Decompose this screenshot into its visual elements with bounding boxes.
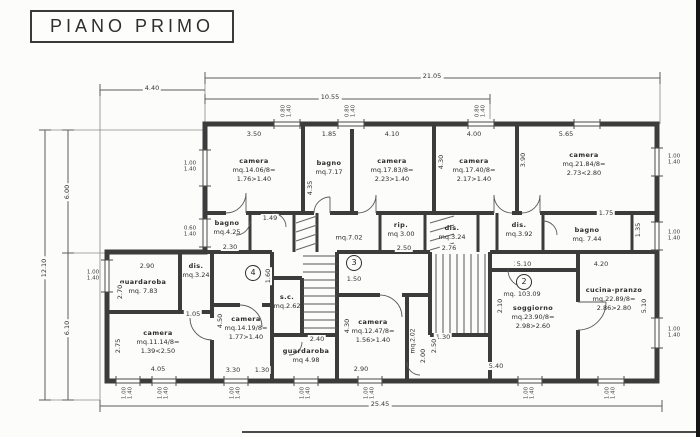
dim-room-19-w2: 5.40: [487, 362, 505, 370]
room-label-dis-c: dis. mq.3.24: [439, 224, 466, 242]
dim-stair-width: 2.50: [430, 337, 438, 355]
window-label-bottom-4: 1.001.40: [300, 387, 313, 399]
dim-left-upper: 6.00: [63, 183, 71, 201]
room-label-dis-w: dis. mq.3.24: [183, 262, 210, 280]
room-label-camera-n1: camera mq.17.83/8= 2.23>1.40: [371, 157, 414, 183]
dim-room-13-w: 4.05: [149, 365, 167, 373]
dim-room-3-h: 4.30: [437, 153, 445, 171]
window-label-left-mid: 0.601.40: [184, 226, 196, 239]
room-label-rip-s: mq.2.02: [410, 329, 417, 354]
dim-left-lower: 6.10: [63, 319, 71, 337]
dim-room-19-w: 5.10: [515, 260, 533, 268]
dim-room-14-h: 4.50: [216, 312, 224, 330]
dim-room-16-w: 2.40: [308, 335, 326, 343]
dim-room-5-w: 2.30: [221, 243, 239, 251]
floor-plan-page: PIANO PRIMO 21.05 10.55 4.40 12.10 6.00 …: [0, 0, 700, 437]
dim-room-4-w: 5.65: [557, 130, 575, 138]
dim-top-total: 21.05: [421, 72, 444, 80]
window-label-right-2: 1.001.40: [668, 230, 680, 243]
window-label-top-2: 0.801.40: [345, 105, 358, 117]
dim-room-10-w: 1.75: [597, 209, 615, 217]
dim-left-total: 12.10: [40, 257, 48, 280]
window-label-left-upper: 1.001.40: [184, 161, 196, 174]
dim-room-4-h: 3.90: [519, 151, 527, 169]
room-label-camera-sw: camera mq.11.14/8= 1.39<2.50: [137, 329, 180, 355]
dim-stair-door: 1.49: [261, 214, 279, 222]
room-label-dis-e: dis. mq.3.92: [506, 221, 533, 239]
window-label-top-3: 0.801.40: [475, 105, 488, 117]
dim-room-0-w: 3.50: [245, 130, 263, 138]
dim-room-3-w: 4.00: [465, 130, 483, 138]
dim-room-12-w: 1.05: [184, 310, 202, 318]
dim-bottom-total: 25.45: [369, 400, 392, 408]
scan-edge-right: [696, 0, 700, 437]
dim-room-11-h: 2.70: [116, 283, 124, 301]
room-label-camera-ne: camera mq.21.84/8= 2.73<2.80: [563, 151, 606, 177]
window-label-right-3: 1.001.40: [668, 327, 680, 340]
dim-room-17-w: 2.90: [352, 365, 370, 373]
room-label-bagno-e: bagno mq. 7.44: [572, 226, 601, 244]
room-label-rip-c: rip. mq 3.00: [388, 221, 415, 239]
dim-room-1-h: 4.35: [306, 179, 314, 197]
dim-room-8-w: 2.76: [440, 244, 458, 252]
dim-room-10-h: 1.35: [634, 221, 642, 239]
dim-room-14-w: 3.30: [224, 366, 242, 374]
dim-room-19-h: 2.10: [496, 297, 504, 315]
room-label-corridor: mq.7.02: [336, 234, 363, 243]
room-label-guardaroba-w: guardaroba mq. 7.83: [120, 278, 167, 296]
apartment-number-3: 3: [346, 255, 362, 271]
dim-room-17-h: 4.30: [343, 317, 351, 335]
room-label-sc: s.c. mq.2.62: [274, 293, 301, 311]
dim-door-a: 1.30: [253, 366, 271, 374]
apartment-2-total-area: mq. 103.09: [501, 290, 542, 298]
page-title: PIANO PRIMO: [30, 10, 234, 43]
window-label-bottom-5: 1.001.40: [364, 387, 377, 399]
scan-edge-bottom: [242, 431, 696, 433]
dim-apt3-below: 1.50: [345, 275, 363, 283]
dim-room-1-w: 1.85: [320, 130, 338, 138]
dim-room-7-w: 2.50: [395, 244, 413, 252]
room-label-guardaroba-s: guardaroba mq 4.98: [283, 347, 330, 365]
dim-top-mid: 10.55: [319, 93, 342, 101]
window-label-bottom-3: 1.001.40: [230, 387, 243, 399]
window-label-right-1: 1.001.40: [668, 154, 680, 167]
window-label-bottom-6: 1.001.40: [524, 387, 537, 399]
window-label-bottom-7: 1.001.40: [605, 387, 618, 399]
room-label-camera-nw: camera mq.14.06/8= 1.76>1.40: [233, 157, 276, 183]
room-label-bagno-n: bagno mq.7.17: [316, 159, 343, 177]
room-label-camera-s2: camera mq.12.47/8= 1.56>1.40: [352, 318, 395, 344]
room-label-camera-s1: camera mq.14.19/8= 1.77>1.40: [225, 315, 268, 341]
dim-room-18-h: 2.00: [419, 347, 427, 365]
apartment-number-2: 2: [516, 274, 532, 290]
window-label-bottom-2: 1.001.40: [158, 387, 171, 399]
dim-room-20-w: 4.20: [592, 260, 610, 268]
dim-near-apt4: 1.60: [264, 267, 272, 285]
window-label-bottom-1: 1.001.40: [122, 387, 135, 399]
dim-top-left: 4.40: [143, 84, 161, 92]
dim-room-2-w: 4.10: [383, 130, 401, 138]
dim-room-13-h: 2.75: [114, 337, 122, 355]
dim-room-20-h: 5.10: [640, 297, 648, 315]
floor-plan-drawing: [0, 0, 700, 437]
window-label-top-1: 0.801.40: [281, 105, 294, 117]
room-label-camera-n2: camera mq.17.40/8= 2.17>1.40: [453, 157, 496, 183]
room-label-bagno-w: bagno mq.4.25: [214, 219, 241, 237]
apartment-number-4: 4: [245, 265, 261, 281]
dim-room-11-w: 2.90: [138, 262, 156, 270]
hatching: [296, 216, 454, 250]
room-label-soggiorno: soggiorno mq.23.90/8= 2.98>2.60: [512, 304, 555, 330]
window-label-left-lower: 1.001.40: [87, 270, 99, 283]
room-label-cucina: cucina-pranzo mq.22.89/8= 2.86>2.80: [586, 286, 643, 312]
